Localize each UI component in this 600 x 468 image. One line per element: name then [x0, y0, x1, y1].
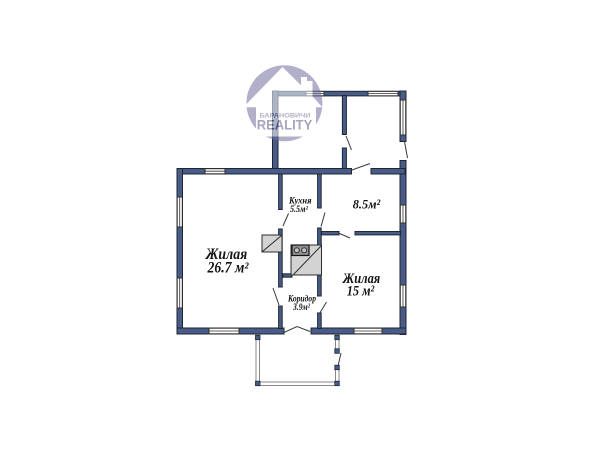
svg-text:15 м²: 15 м²: [347, 284, 375, 300]
svg-text:8.5м²: 8.5м²: [353, 197, 382, 212]
svg-text:5.5м²: 5.5м²: [290, 204, 308, 214]
svg-text:3.9м²: 3.9м²: [292, 303, 311, 313]
svg-text:REALITY: REALITY: [257, 117, 313, 133]
svg-text:26.7 м²: 26.7 м²: [207, 260, 249, 277]
